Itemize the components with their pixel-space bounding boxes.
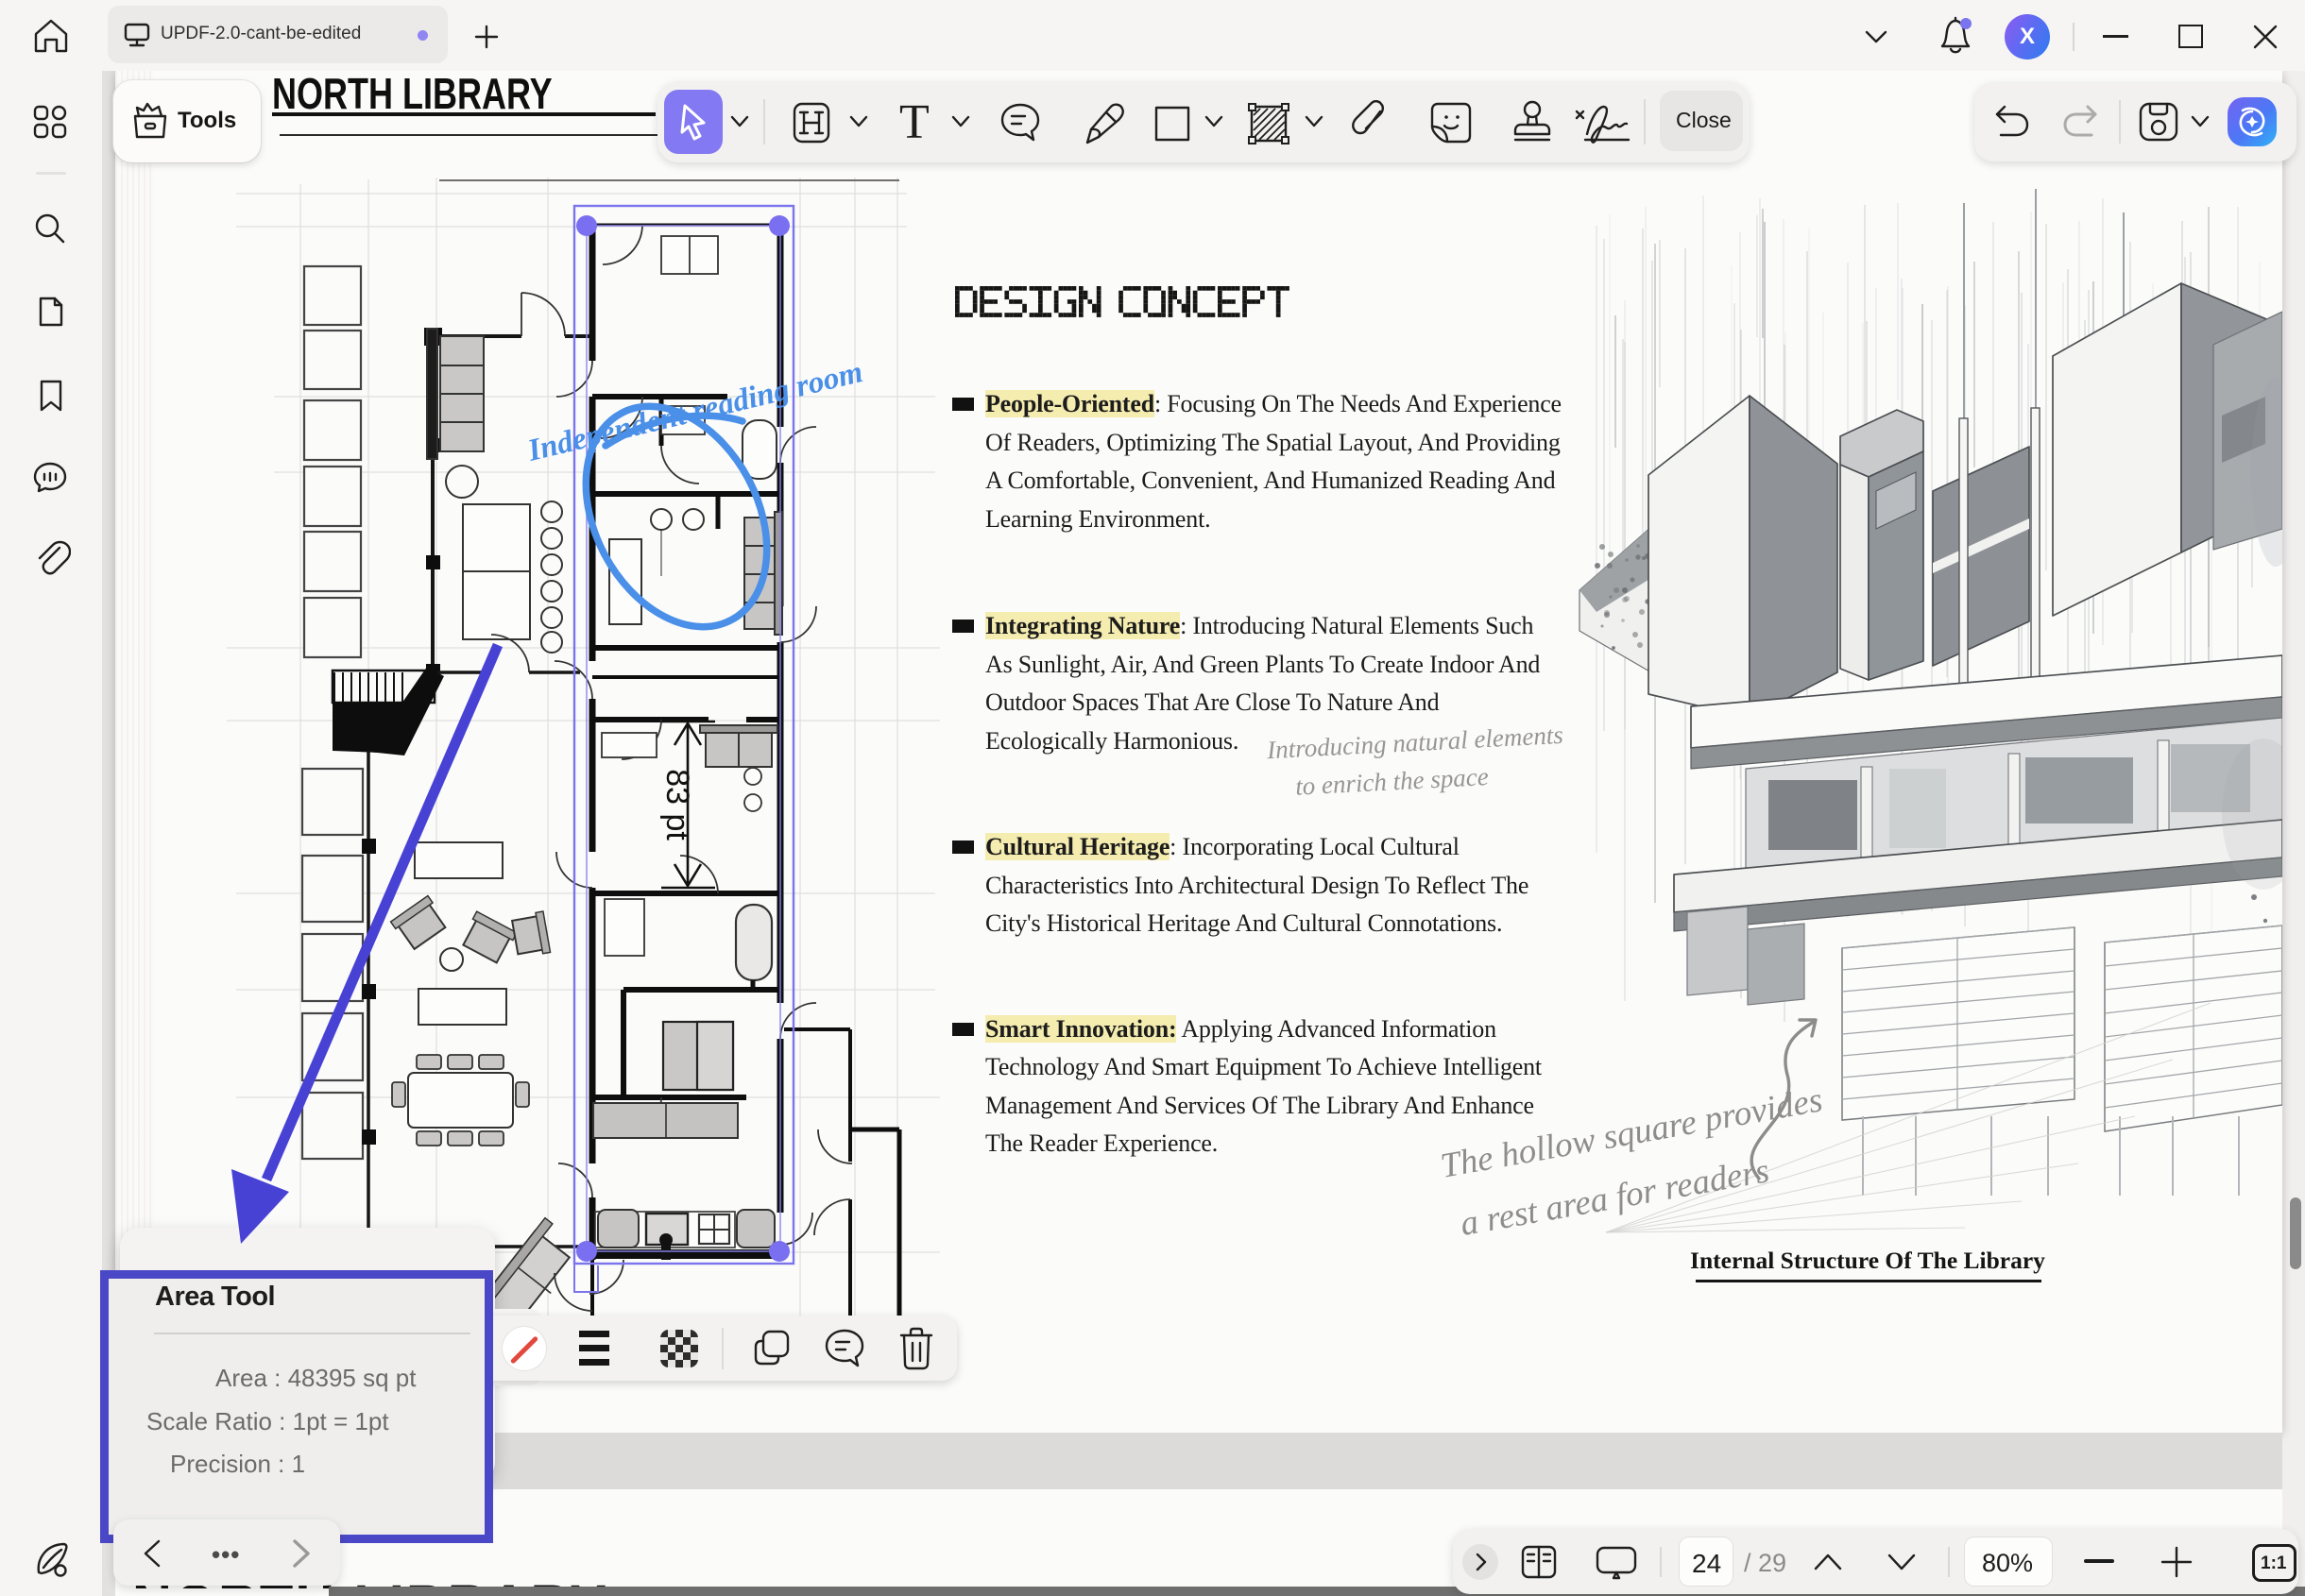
svg-text:83 pt: 83 pt: [659, 769, 695, 840]
